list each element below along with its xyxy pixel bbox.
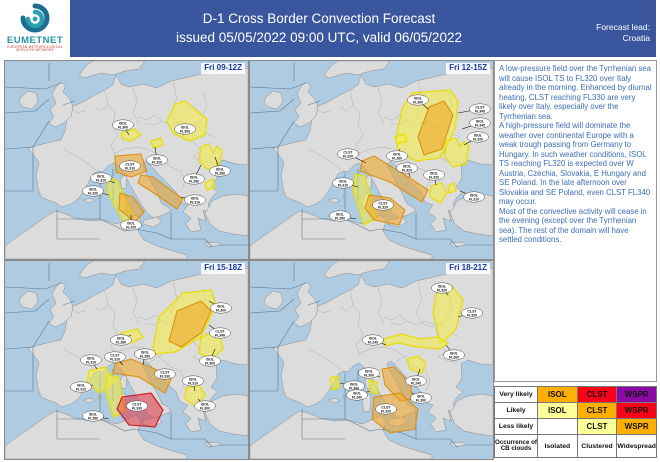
panel-time-label: Fri 12-15Z — [446, 63, 490, 74]
svg-text:FL260: FL260 — [449, 356, 459, 360]
flight-level-label: CLSTFL330 — [155, 369, 176, 379]
forecast-lead: Forecast lead: Croatia — [562, 0, 650, 43]
eumetnet-spiral-icon — [14, 2, 56, 36]
flight-level-label: CLSTFL320 — [376, 404, 397, 414]
header: EUMETNET EUROPEAN METEOROLOGICAL SERVICE… — [0, 0, 660, 57]
map-18-21z: ISOLFL320CLSTFL330ISOLFL260ISOLFL240ISOL… — [250, 261, 493, 459]
panel-time-label: Fri 09-12Z — [201, 63, 245, 74]
svg-text:FL280: FL280 — [88, 417, 98, 421]
forecast-page: { "header": { "logo": {"name": "EUMETNET… — [0, 0, 660, 462]
forecast-paragraph-1: A low-pressure field over the Tyrrhenian… — [499, 64, 652, 121]
flight-level-label: ISOLFL300 — [359, 368, 381, 378]
svg-text:FL310: FL310 — [76, 388, 86, 392]
svg-text:FL240: FL240 — [411, 382, 421, 386]
svg-text:FL300: FL300 — [118, 126, 128, 130]
svg-text:FL280: FL280 — [352, 396, 362, 400]
svg-text:FL320: FL320 — [437, 289, 447, 293]
title-bar: D-1 Cross Border Convection Forecast iss… — [70, 0, 656, 57]
legend-cell-isolated: Isolated — [538, 435, 578, 458]
flight-level-label: CLSTFL330 — [127, 401, 148, 411]
forecast-paragraph-2: A high-pressure field will dominate the … — [499, 121, 652, 207]
svg-text:FL320: FL320 — [473, 138, 483, 142]
svg-text:FL320: FL320 — [152, 161, 162, 165]
svg-text:FL310: FL310 — [338, 184, 348, 188]
svg-text:FL320: FL320 — [88, 192, 98, 196]
legend: Very likelyISOLCLSTWSPRLikelyISOLCLSTWSP… — [494, 386, 657, 458]
legend-row-label: Very likely — [495, 387, 538, 403]
svg-text:FL310: FL310 — [96, 179, 106, 183]
legend-cell-isol: ISOL — [538, 403, 578, 419]
map-12-15z: ISOLFL300CLSTFL340ISOLFL340ISOLFL320CLST… — [250, 61, 493, 259]
svg-text:FL340: FL340 — [475, 124, 485, 128]
svg-text:FL310: FL310 — [86, 361, 96, 365]
map-09-12z: ISOLFL300ISOLFL300CLSTFL310ISOLFL320ISOL… — [5, 61, 248, 259]
legend-cell-wspr: WSPR — [617, 419, 657, 435]
eumetnet-logo: EUMETNET EUROPEAN METEOROLOGICAL SERVICE… — [0, 0, 70, 57]
svg-text:FL300: FL300 — [364, 374, 374, 378]
svg-text:FL310: FL310 — [469, 198, 479, 202]
legend-cell-widespread: Widespread — [617, 435, 657, 458]
svg-text:FL320: FL320 — [402, 169, 412, 173]
convection-region-yellow — [199, 144, 222, 169]
map-panel-09-12z: ISOLFL300ISOLFL300CLSTFL310ISOLFL320ISOL… — [4, 60, 249, 260]
svg-text:FL300: FL300 — [413, 101, 423, 105]
svg-text:FL280: FL280 — [215, 172, 225, 176]
convection-region-yellow — [330, 376, 340, 390]
legend-cell-clustered: Clustered — [577, 435, 617, 458]
svg-text:FL330: FL330 — [160, 375, 170, 379]
svg-text:FL280: FL280 — [189, 180, 199, 184]
svg-text:FL310: FL310 — [188, 382, 198, 386]
svg-text:FL280: FL280 — [116, 341, 126, 345]
map-panel-18-21z: ISOLFL320CLSTFL330ISOLFL260ISOLFL240ISOL… — [249, 260, 494, 460]
svg-text:FL280: FL280 — [335, 217, 345, 221]
svg-text:FL320: FL320 — [381, 410, 391, 414]
panel-time-label: Fri 18-21Z — [446, 263, 490, 274]
svg-text:FL340: FL340 — [475, 110, 485, 114]
legend-cell-wspr: WSPR — [617, 387, 657, 403]
svg-text:FL300: FL300 — [180, 130, 190, 134]
page-title: D-1 Cross Border Convection Forecast iss… — [76, 10, 562, 46]
map-panel-15-18z: ISOLFL300CLSTFL340ISOLFL300ISOLFL280CLST… — [4, 260, 249, 460]
svg-text:FL300: FL300 — [216, 309, 226, 313]
forecast-lead-value: Croatia — [562, 33, 650, 44]
map-panel-12-15z: ISOLFL300CLSTFL340ISOLFL340ISOLFL320CLST… — [249, 60, 494, 260]
svg-text:FL320: FL320 — [429, 176, 439, 180]
svg-text:FL300: FL300 — [200, 407, 210, 411]
flight-level-label: ISOLFL280 — [111, 335, 132, 345]
legend-row-label: Less likely — [495, 419, 538, 435]
svg-text:FL300: FL300 — [205, 362, 215, 366]
legend-row-label: Occurrence of CB clouds — [495, 435, 538, 458]
map-15-18z: ISOLFL300CLSTFL340ISOLFL300ISOLFL280CLST… — [5, 261, 248, 459]
svg-text:FL340: FL340 — [215, 334, 225, 338]
legend-cell-clst: CLST — [577, 419, 617, 435]
forecast-discussion: A low-pressure field over the Tyrrhenian… — [494, 60, 657, 382]
legend-table: Very likelyISOLCLSTWSPRLikelyISOLCLSTWSP… — [494, 386, 657, 458]
svg-text:FL320: FL320 — [343, 155, 353, 159]
legend-cell-clst: CLST — [577, 387, 617, 403]
title-line-2: issued 05/05/2022 09:00 UTC, valid 06/05… — [76, 29, 562, 47]
svg-text:FL280: FL280 — [140, 355, 150, 359]
svg-text:FL240: FL240 — [368, 341, 378, 345]
title-line-1: D-1 Cross Border Convection Forecast — [76, 10, 562, 28]
legend-row-label: Likely — [495, 403, 538, 419]
legend-cell-wspr: WSPR — [617, 403, 657, 419]
flight-level-label: CLSTFL310 — [120, 161, 141, 171]
svg-text:FL310: FL310 — [125, 167, 135, 171]
svg-text:FL310: FL310 — [190, 201, 200, 205]
legend-cell-isol: ISOL — [538, 387, 578, 403]
legend-cell-empty — [538, 419, 578, 435]
forecast-lead-label: Forecast lead: — [562, 22, 650, 33]
svg-text:FL320: FL320 — [126, 226, 136, 230]
svg-text:FL310: FL310 — [110, 358, 120, 362]
panel-time-label: Fri 15-18Z — [201, 263, 245, 274]
convection-region-yellow — [369, 380, 378, 394]
svg-text:FL280: FL280 — [392, 157, 402, 161]
legend-cell-clst: CLST — [577, 403, 617, 419]
logo-tagline-2: SERVICES NETWORK — [16, 49, 54, 53]
svg-text:FL320: FL320 — [378, 206, 388, 210]
svg-text:FL330: FL330 — [467, 314, 477, 318]
svg-text:FL330: FL330 — [132, 407, 142, 411]
svg-text:FL300: FL300 — [416, 399, 426, 403]
forecast-paragraph-3: Most of the convective activity will cea… — [499, 207, 652, 245]
flight-level-label: CLSTFL320 — [373, 200, 394, 210]
flight-level-label: ISOLFL300 — [411, 393, 432, 403]
